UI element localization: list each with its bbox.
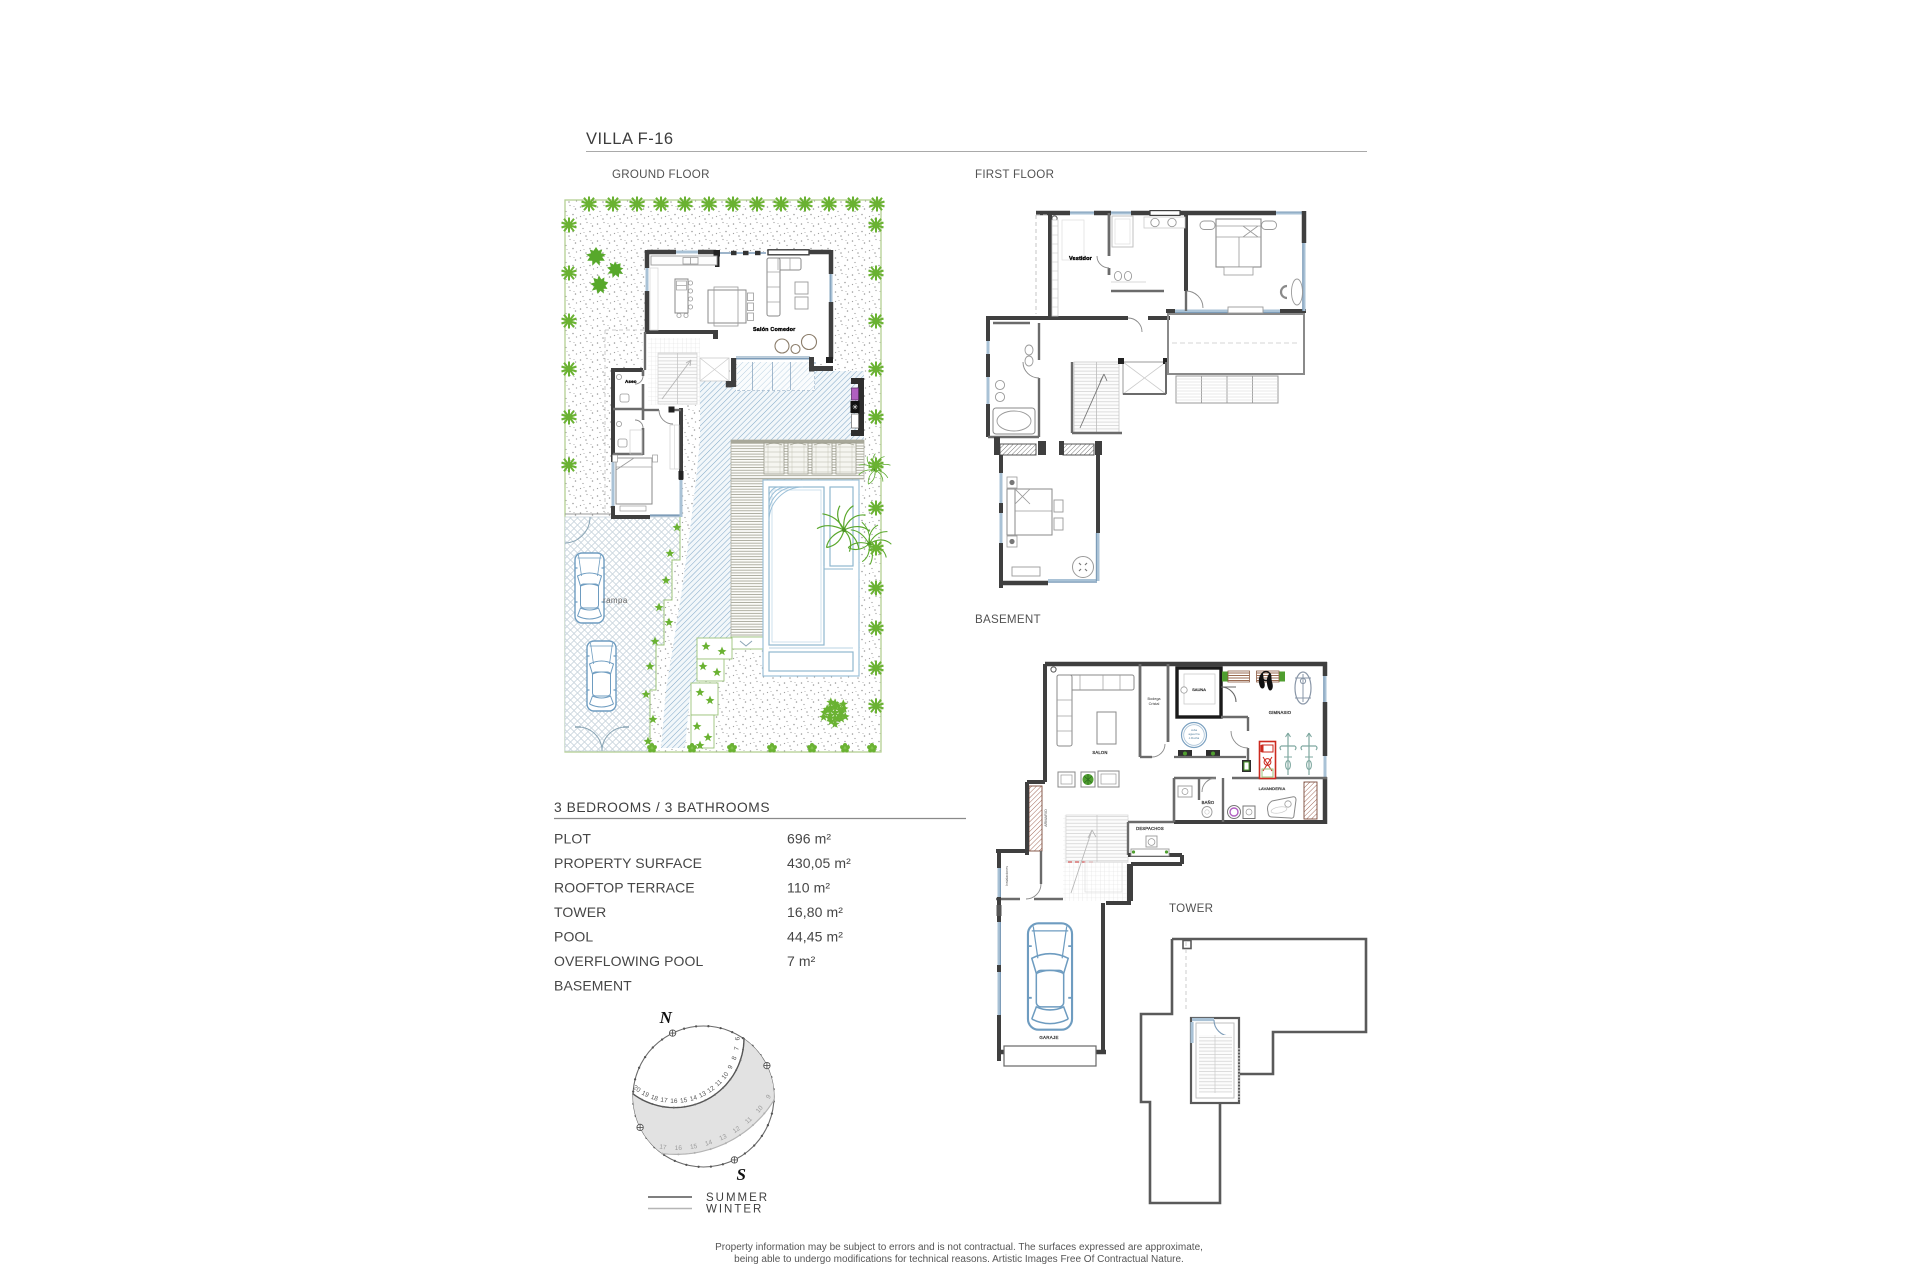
- svg-text:15: 15: [680, 1097, 689, 1105]
- svg-text:being able to undergo modifica: being able to undergo modifications for …: [734, 1254, 1184, 1265]
- svg-text:LAVANDERIA: LAVANDERIA: [1259, 786, 1286, 791]
- svg-text:S: S: [736, 1165, 745, 1184]
- svg-text:DESPACHOS: DESPACHOS: [1136, 826, 1164, 831]
- svg-text:GROUND FLOOR: GROUND FLOOR: [612, 168, 710, 181]
- svg-text:ARMARIO: ARMARIO: [1044, 809, 1048, 827]
- svg-text:SUMMER: SUMMER: [706, 1192, 769, 1204]
- svg-text:Aseo: Aseo: [625, 379, 637, 384]
- svg-text:ó Ducha: ó Ducha: [1189, 736, 1200, 740]
- svg-text:15: 15: [690, 1143, 699, 1151]
- svg-text:19: 19: [640, 1090, 650, 1100]
- svg-text:13: 13: [698, 1090, 708, 1100]
- svg-text:PLOT: PLOT: [554, 831, 591, 847]
- svg-text:12: 12: [706, 1085, 716, 1095]
- svg-text:6: 6: [734, 1036, 741, 1040]
- svg-text:GIMNASIO: GIMNASIO: [1269, 710, 1292, 715]
- svg-text:16: 16: [670, 1098, 678, 1105]
- svg-text:7 m²: 7 m²: [787, 953, 816, 969]
- svg-text:17: 17: [659, 1144, 667, 1152]
- svg-text:18: 18: [650, 1094, 659, 1103]
- svg-text:OVERFLOWING POOL: OVERFLOWING POOL: [554, 953, 704, 969]
- svg-text:3 BEDROOMS / 3 BATHROOMS: 3 BEDROOMS / 3 BATHROOMS: [554, 800, 770, 815]
- svg-text:Salón Comedor: Salón Comedor: [753, 327, 796, 333]
- svg-text:N: N: [659, 1008, 673, 1027]
- svg-text:VILLA F-16: VILLA F-16: [586, 130, 674, 148]
- svg-text:BAÑO: BAÑO: [1202, 800, 1215, 805]
- svg-text:BASEMENT: BASEMENT: [554, 978, 632, 994]
- svg-text:110 m²: 110 m²: [787, 880, 830, 896]
- svg-text:696 m²: 696 m²: [787, 831, 831, 847]
- svg-text:7: 7: [733, 1046, 741, 1051]
- svg-text:Bodega: Bodega: [1147, 697, 1161, 701]
- svg-text:16: 16: [675, 1145, 683, 1152]
- svg-text:TOWER: TOWER: [1169, 902, 1213, 915]
- svg-text:PROPERTY SURFACE: PROPERTY SURFACE: [554, 855, 702, 871]
- svg-text:16,80 m²: 16,80 m²: [787, 904, 843, 920]
- svg-text:SALON: SALON: [1092, 750, 1107, 755]
- svg-text:POOL: POOL: [554, 929, 593, 945]
- svg-text:WINTER: WINTER: [706, 1204, 763, 1216]
- svg-text:ROOFTOP TERRACE: ROOFTOP TERRACE: [554, 880, 695, 896]
- svg-text:Property information may be su: Property information may be subject to e…: [715, 1242, 1203, 1253]
- svg-text:GARAJE: GARAJE: [1039, 1035, 1058, 1040]
- svg-text:8: 8: [731, 1055, 739, 1061]
- svg-text:BASEMENT: BASEMENT: [975, 613, 1041, 626]
- svg-text:Instalaciones: Instalaciones: [1005, 866, 1009, 886]
- svg-text:17: 17: [660, 1097, 669, 1105]
- svg-text:FIRST FLOOR: FIRST FLOOR: [975, 168, 1054, 181]
- svg-text:14: 14: [689, 1094, 698, 1103]
- svg-text:SAUNA: SAUNA: [1192, 687, 1206, 692]
- svg-text:✳: ✳: [852, 404, 858, 412]
- svg-text:Cristal: Cristal: [1149, 702, 1160, 706]
- svg-text:44,45 m²: 44,45 m²: [787, 929, 843, 945]
- svg-text:rampa: rampa: [603, 596, 628, 605]
- svg-text:430,05 m²: 430,05 m²: [787, 855, 851, 871]
- svg-text:10: 10: [721, 1071, 731, 1081]
- svg-text:Vestidor: Vestidor: [1069, 256, 1093, 262]
- svg-text:9: 9: [727, 1064, 735, 1071]
- svg-text:11: 11: [714, 1078, 724, 1088]
- svg-text:TOWER: TOWER: [554, 904, 606, 920]
